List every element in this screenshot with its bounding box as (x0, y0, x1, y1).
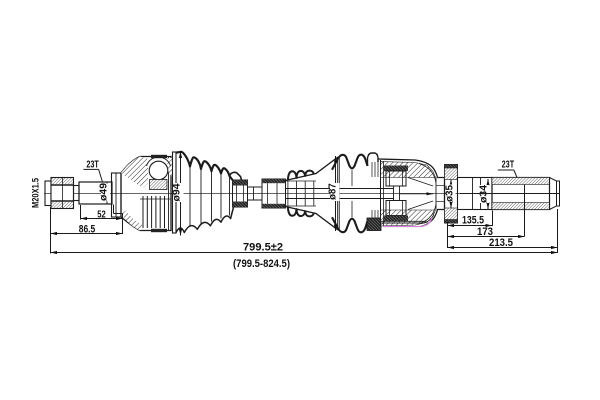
svg-text:M20X1.5: M20X1.5 (31, 178, 41, 208)
svg-text:213.5: 213.5 (489, 237, 513, 249)
svg-text:ø49: ø49 (98, 183, 109, 201)
svg-text:135.5: 135.5 (462, 215, 484, 227)
svg-text:23T: 23T (502, 160, 515, 171)
svg-text:(799.5-824.5): (799.5-824.5) (233, 258, 290, 270)
svg-text:52: 52 (97, 209, 106, 221)
svg-text:86.5: 86.5 (79, 224, 96, 236)
svg-text:799.5±2: 799.5±2 (243, 241, 283, 253)
svg-text:ø35: ø35 (444, 185, 455, 202)
svg-text:23T: 23T (86, 159, 99, 170)
svg-text:ø87: ø87 (327, 183, 338, 200)
svg-text:ø94: ø94 (171, 183, 182, 201)
